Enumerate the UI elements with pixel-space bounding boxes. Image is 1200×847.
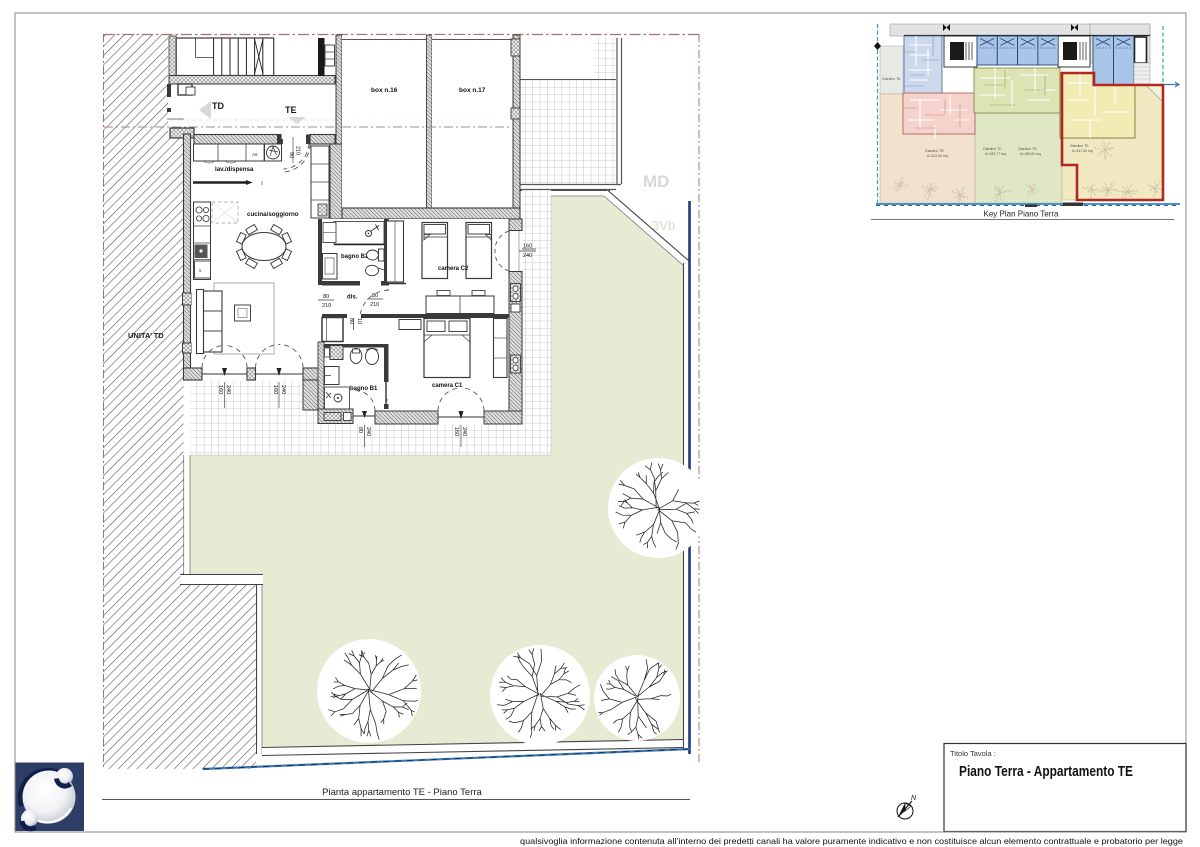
svg-text:80: 80 <box>348 318 354 324</box>
svg-text:camera C1: camera C1 <box>432 383 463 389</box>
svg-text:UNITA’ TD: UNITA’ TD <box>128 331 164 340</box>
svg-text:box n.16: box n.16 <box>371 87 398 94</box>
svg-text:lav./dispensa: lav./dispensa <box>215 166 254 173</box>
svg-text:240: 240 <box>523 253 532 259</box>
svg-text:210: 210 <box>322 303 331 309</box>
svg-text:80: 80 <box>357 427 363 433</box>
svg-text:240: 240 <box>365 427 371 436</box>
svg-text:240: 240 <box>461 427 467 436</box>
svg-text:cucina/soggiorno: cucina/soggiorno <box>247 211 299 218</box>
svg-text:A=322,00 mq: A=322,00 mq <box>927 154 948 158</box>
svg-text:210: 210 <box>370 302 379 308</box>
svg-text:210: 210 <box>295 146 301 155</box>
svg-text:Titolo Tavola :: Titolo Tavola : <box>950 749 996 758</box>
svg-text:Piano Terra - Appartamento TE: Piano Terra - Appartamento TE <box>959 764 1133 780</box>
svg-text:qualsivoglia informazione cont: qualsivoglia informazione contenuta all’… <box>520 836 1183 846</box>
svg-text:3Vb: 3Vb <box>652 218 675 233</box>
svg-text:MD: MD <box>643 172 669 191</box>
svg-text:240: 240 <box>225 385 231 394</box>
svg-text:160: 160 <box>523 244 532 250</box>
svg-text:Giardino TE: Giardino TE <box>1070 144 1089 148</box>
svg-text:80: 80 <box>323 294 329 300</box>
svg-text:160: 160 <box>217 385 223 394</box>
svg-text:Giardino TB: Giardino TB <box>925 149 944 153</box>
svg-text:A=182,77 mq: A=182,77 mq <box>985 152 1006 156</box>
svg-text:Giardino TC: Giardino TC <box>983 147 1002 151</box>
svg-text:camera C2: camera C2 <box>438 266 469 272</box>
svg-text:Giardino TA: Giardino TA <box>882 77 901 81</box>
svg-text:A6: A6 <box>252 152 258 157</box>
svg-text:160: 160 <box>453 427 459 436</box>
svg-text:TE: TE <box>285 105 297 115</box>
svg-text:A=347,00 mq: A=347,00 mq <box>1072 149 1093 153</box>
svg-text:bagno B1: bagno B1 <box>350 386 378 392</box>
svg-text:Giardino TD: Giardino TD <box>1018 147 1037 151</box>
svg-text:dis.: dis. <box>347 295 358 301</box>
svg-text:Key Plan Piano Terra: Key Plan Piano Terra <box>984 209 1059 219</box>
svg-text:80: 80 <box>372 293 378 299</box>
svg-text:240: 240 <box>280 385 286 394</box>
svg-text:160: 160 <box>272 385 278 394</box>
svg-text:box n.17: box n.17 <box>459 87 486 94</box>
svg-text:A=180,00 mq: A=180,00 mq <box>1020 152 1041 156</box>
svg-text:Pianta appartamento TE - Piano: Pianta appartamento TE - Piano Terra <box>322 787 482 798</box>
svg-text:TD: TD <box>212 101 224 111</box>
svg-text:bagno B2: bagno B2 <box>341 254 369 260</box>
